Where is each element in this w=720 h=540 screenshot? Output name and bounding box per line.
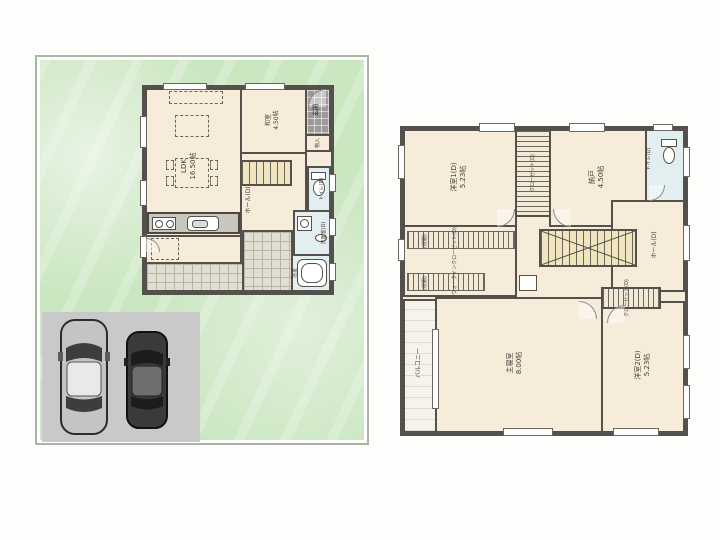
walk-in-closet <box>403 225 517 297</box>
tv-board-icon <box>169 91 223 104</box>
window <box>683 225 690 261</box>
window <box>398 145 405 179</box>
storage-monoire <box>305 134 331 152</box>
chair-icon <box>166 160 174 170</box>
closet-shelf-icon <box>407 273 485 291</box>
counter-niche <box>519 275 537 291</box>
closet-1 <box>515 129 551 217</box>
doma-tile-area <box>242 230 293 292</box>
sink-icon <box>187 216 219 231</box>
closet-2 <box>601 287 661 309</box>
parking-area <box>42 312 200 442</box>
floor-plan-image: LDK 16.50帖 和室 4.50帖 玄関 物入 ホール(D) トイレ(D) … <box>0 0 720 540</box>
chair-icon <box>210 160 218 170</box>
stairs-down-icon <box>539 229 637 267</box>
window <box>398 239 405 261</box>
stove-icon <box>152 217 176 230</box>
closet-shelf-icon <box>407 231 515 249</box>
window <box>329 263 336 281</box>
window <box>479 123 515 132</box>
window <box>140 116 147 148</box>
window <box>503 428 553 436</box>
window <box>140 180 147 206</box>
toilet-icon <box>663 147 675 164</box>
stairwell-cross-icon <box>541 231 635 265</box>
balcony-sliding-window <box>432 329 439 409</box>
terrace-tile-area <box>145 262 244 292</box>
toilet-icon <box>313 180 325 196</box>
window <box>683 385 690 419</box>
room-shinshitsu <box>435 297 603 433</box>
window <box>613 428 659 436</box>
car-icon <box>58 318 110 436</box>
window <box>683 147 690 177</box>
dining-table-icon <box>175 158 209 188</box>
kitchen-counter <box>147 212 240 234</box>
first-floor-plan: LDK 16.50帖 和室 4.50帖 玄関 物入 ホール(D) トイレ(D) … <box>142 85 334 295</box>
window <box>163 83 207 90</box>
washer-drum-icon <box>300 219 309 228</box>
window <box>329 174 336 192</box>
basin-icon <box>315 234 327 242</box>
window <box>245 83 285 90</box>
site-lot: LDK 16.50帖 和室 4.50帖 玄関 物入 ホール(D) トイレ(D) … <box>35 55 369 445</box>
toilet-tank-icon <box>311 172 326 180</box>
bathtub-inner-icon <box>301 263 323 283</box>
car-icon <box>124 330 170 430</box>
room-washitsu <box>240 88 307 154</box>
sofa-table-icon <box>175 115 209 137</box>
window <box>569 123 605 132</box>
stairs-up-icon <box>240 160 292 186</box>
chair-icon <box>210 176 218 186</box>
chair-icon <box>166 176 174 186</box>
toilet-tank-icon <box>661 139 677 147</box>
window <box>653 124 673 131</box>
second-floor-plan: 洋室1(D) 5.23帖 クローゼット(D) 納戸 4.50帖 トイレ(D) ホ… <box>400 126 688 436</box>
window <box>329 218 336 236</box>
window <box>683 335 690 369</box>
